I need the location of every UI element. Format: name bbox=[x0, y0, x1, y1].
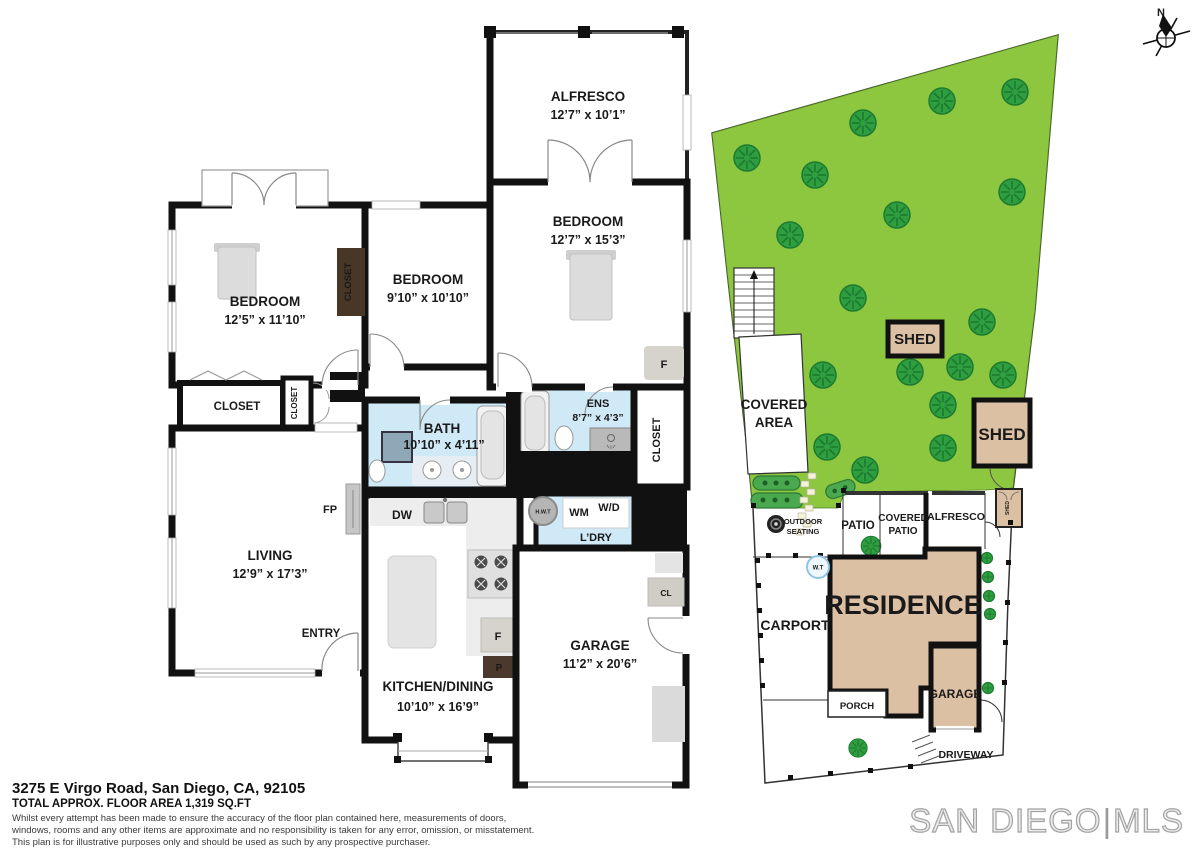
bush-icon bbox=[983, 683, 994, 694]
label-living-dims: 12’9” x 17’3” bbox=[232, 567, 307, 581]
label-wt: W.T bbox=[813, 566, 824, 572]
label-bath: BATH bbox=[424, 421, 461, 436]
label-patio: PATIO bbox=[841, 520, 874, 532]
tree-icon bbox=[850, 110, 876, 136]
label-porch: PORCH bbox=[840, 701, 874, 712]
label-wm: WM bbox=[569, 507, 589, 519]
bush-icon bbox=[984, 591, 995, 602]
label-kitchen-dims: 10’10” x 16’9” bbox=[397, 700, 479, 714]
label-alfresco: ALFRESCO bbox=[551, 89, 625, 104]
label-closet-vert: CLOSET bbox=[290, 387, 299, 420]
room-alfresco bbox=[484, 26, 691, 182]
label-shed-right: SHED bbox=[978, 425, 1025, 444]
label-bedroom-left-dims: 12’5” x 11’10” bbox=[224, 313, 305, 327]
tree-icon bbox=[814, 434, 840, 460]
floor-plan: ALFRESCO 12’7” x 10’1” BEDROOM 12’7” x 1… bbox=[168, 26, 691, 790]
label-bedroom-right-dims: 12’7” x 15’3” bbox=[550, 233, 625, 247]
tree-icon bbox=[840, 285, 866, 311]
bush-icon bbox=[983, 572, 994, 583]
sandiego-mls-logo: SAN DIEGO|MLS bbox=[909, 802, 1184, 840]
disclaimer: Whilst every attempt has been made to en… bbox=[12, 813, 534, 848]
disclaimer-line: This plan is for illustrative purposes o… bbox=[12, 837, 534, 848]
bush-icon bbox=[985, 609, 996, 620]
label-covered-patio-2: PATIO bbox=[888, 526, 917, 537]
label-wd: W/D bbox=[598, 502, 619, 514]
bay-window bbox=[393, 733, 493, 763]
label-outdoor-1: OUTDOOR bbox=[784, 517, 823, 526]
label-covered-area-1: COVERED bbox=[741, 397, 808, 412]
label-closet: CLOSET bbox=[214, 401, 261, 413]
toilet bbox=[555, 426, 573, 450]
stairs bbox=[734, 268, 774, 338]
label-f-kitchen: F bbox=[495, 631, 502, 643]
disclaimer-line: Whilst every attempt has been made to en… bbox=[12, 813, 534, 825]
label-outdoor-2: SEATING bbox=[787, 527, 820, 536]
floorplan-page: ALFRESCO 12’7” x 10’1” BEDROOM 12’7” x 1… bbox=[0, 0, 1200, 848]
label-garage-dims: 11’2” x 20’6” bbox=[563, 657, 637, 671]
label-site-garage: GARAGE bbox=[929, 687, 982, 701]
compass: N bbox=[1143, 7, 1190, 56]
bed-icon bbox=[214, 243, 260, 299]
label-cl: CL bbox=[660, 588, 671, 598]
tree-icon bbox=[999, 179, 1025, 205]
label-hwt: H.W.T bbox=[535, 510, 551, 516]
label-bedroom-mid: BEDROOM bbox=[393, 272, 464, 287]
label-shed-top: SHED bbox=[894, 331, 936, 348]
label-ens-dims: 8’7” x 4’3” bbox=[572, 412, 623, 424]
tree-icon bbox=[852, 457, 878, 483]
label-entry: ENTRY bbox=[302, 628, 341, 640]
tree-icon bbox=[930, 435, 956, 461]
tree-icon bbox=[802, 162, 828, 188]
label-bath-dims: 10’10” x 4’11” bbox=[403, 438, 484, 452]
label-closet-right: CLOSET bbox=[651, 417, 663, 462]
tree-icon bbox=[777, 222, 803, 248]
title-block: 3275 E Virgo Road, San Diego, CA, 92105 … bbox=[12, 780, 534, 848]
disclaimer-line: windows, rooms and any other items are a… bbox=[12, 825, 534, 837]
firepit-icon bbox=[767, 515, 785, 533]
label-shed-small: SHED bbox=[1005, 501, 1011, 515]
tree-icon bbox=[849, 739, 867, 757]
label-kitchen: KITCHEN/DINING bbox=[383, 679, 494, 694]
stove bbox=[468, 550, 514, 598]
tree-icon bbox=[990, 362, 1016, 388]
tree-icon bbox=[734, 145, 760, 171]
label-garage: GARAGE bbox=[570, 638, 629, 653]
label-carport: CARPORT bbox=[760, 617, 830, 633]
label-alfresco-dims: 12’7” x 10’1” bbox=[550, 108, 625, 122]
kitchen-island bbox=[388, 556, 436, 648]
label-living: LIVING bbox=[247, 548, 292, 563]
plan-canvas: ALFRESCO 12’7” x 10’1” BEDROOM 12’7” x 1… bbox=[0, 0, 1200, 848]
label-dw: DW bbox=[392, 508, 413, 522]
label-f-bedroom: F bbox=[661, 359, 668, 371]
bed-icon bbox=[566, 250, 616, 320]
label-ens: ENS bbox=[587, 398, 610, 410]
garage-storage bbox=[652, 686, 685, 742]
label-p: P bbox=[496, 663, 503, 674]
tree-icon bbox=[861, 536, 881, 556]
site-plan: SHED SHED SHED COVERED AREA OUTDOOR SEAT… bbox=[712, 35, 1058, 783]
label-bedroom-left: BEDROOM bbox=[230, 294, 301, 309]
tree-icon bbox=[930, 392, 956, 418]
label-covered-area-2: AREA bbox=[755, 415, 794, 430]
label-site-alfresco: ALFRESCO bbox=[927, 511, 985, 523]
label-covered-patio-1: COVERED bbox=[878, 513, 927, 524]
bush-icon bbox=[982, 553, 993, 564]
brand-right: MLS bbox=[1113, 802, 1184, 839]
label-closet-dark: CLOSET bbox=[343, 263, 354, 302]
label-residence: RESIDENCE bbox=[824, 590, 982, 620]
label-bedroom-mid-dims: 9’10” x 10’10” bbox=[387, 291, 469, 305]
label-ldry: L’DRY bbox=[580, 532, 613, 544]
tree-icon bbox=[929, 88, 955, 114]
tree-icon bbox=[947, 354, 973, 380]
tree-icon bbox=[897, 359, 923, 385]
address: 3275 E Virgo Road, San Diego, CA, 92105 bbox=[12, 780, 534, 797]
label-bedroom-right: BEDROOM bbox=[553, 214, 624, 229]
tree-icon bbox=[810, 362, 836, 388]
toilet bbox=[369, 460, 385, 482]
tree-icon bbox=[969, 309, 995, 335]
brand-left: SAN DIEGO bbox=[909, 802, 1101, 839]
tree-icon bbox=[1002, 79, 1028, 105]
label-driveway: DRIVEWAY bbox=[938, 749, 993, 761]
label-fp: FP bbox=[323, 504, 337, 516]
floor-area: TOTAL APPROX. FLOOR AREA 1,319 SQ.FT bbox=[12, 798, 534, 810]
tree-icon bbox=[884, 202, 910, 228]
brand-divider: | bbox=[1102, 802, 1114, 839]
